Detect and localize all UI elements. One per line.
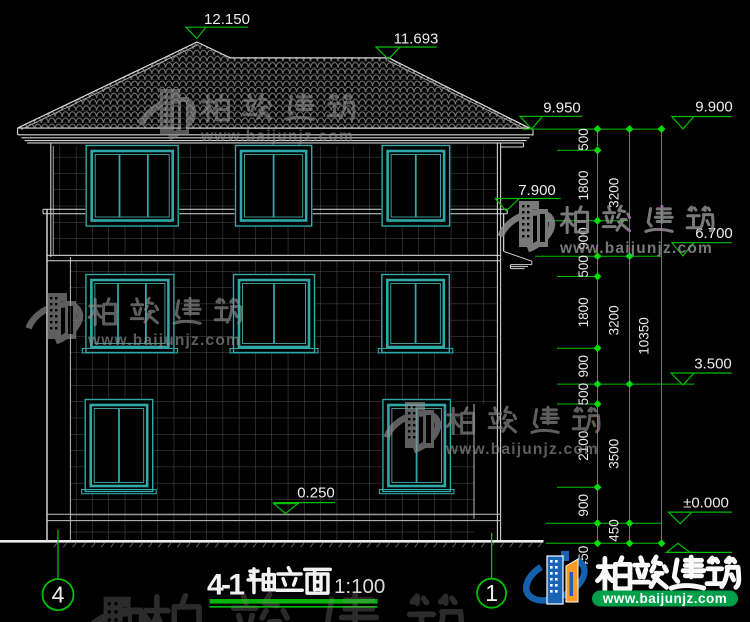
svg-text:7.900: 7.900: [518, 182, 556, 199]
svg-text:3500: 3500: [607, 439, 622, 469]
svg-text:9.900: 9.900: [695, 99, 733, 116]
svg-text:450: 450: [607, 519, 622, 542]
svg-text:1800: 1800: [576, 297, 591, 327]
svg-text:3.500: 3.500: [694, 356, 732, 373]
svg-text:1:100: 1:100: [334, 575, 385, 598]
svg-text:www.baijunjz.com: www.baijunjz.com: [602, 591, 728, 606]
svg-text:10350: 10350: [637, 317, 652, 355]
svg-text:900: 900: [576, 355, 591, 378]
svg-text:900: 900: [576, 494, 591, 517]
svg-text:9.950: 9.950: [543, 100, 581, 117]
svg-text:1800: 1800: [576, 170, 591, 200]
svg-text:11.693: 11.693: [394, 31, 439, 48]
svg-text:4: 4: [52, 582, 65, 608]
svg-text:4-1: 4-1: [207, 569, 245, 602]
svg-text:3200: 3200: [607, 178, 622, 208]
svg-text:12.150: 12.150: [204, 11, 250, 28]
svg-text:1: 1: [485, 580, 498, 606]
svg-text:3200: 3200: [607, 305, 622, 335]
svg-text:500: 500: [576, 383, 591, 406]
svg-text:±0.000: ±0.000: [683, 495, 729, 512]
svg-text:500: 500: [576, 128, 591, 151]
svg-text:0.250: 0.250: [297, 485, 335, 502]
svg-text:500: 500: [576, 255, 591, 278]
